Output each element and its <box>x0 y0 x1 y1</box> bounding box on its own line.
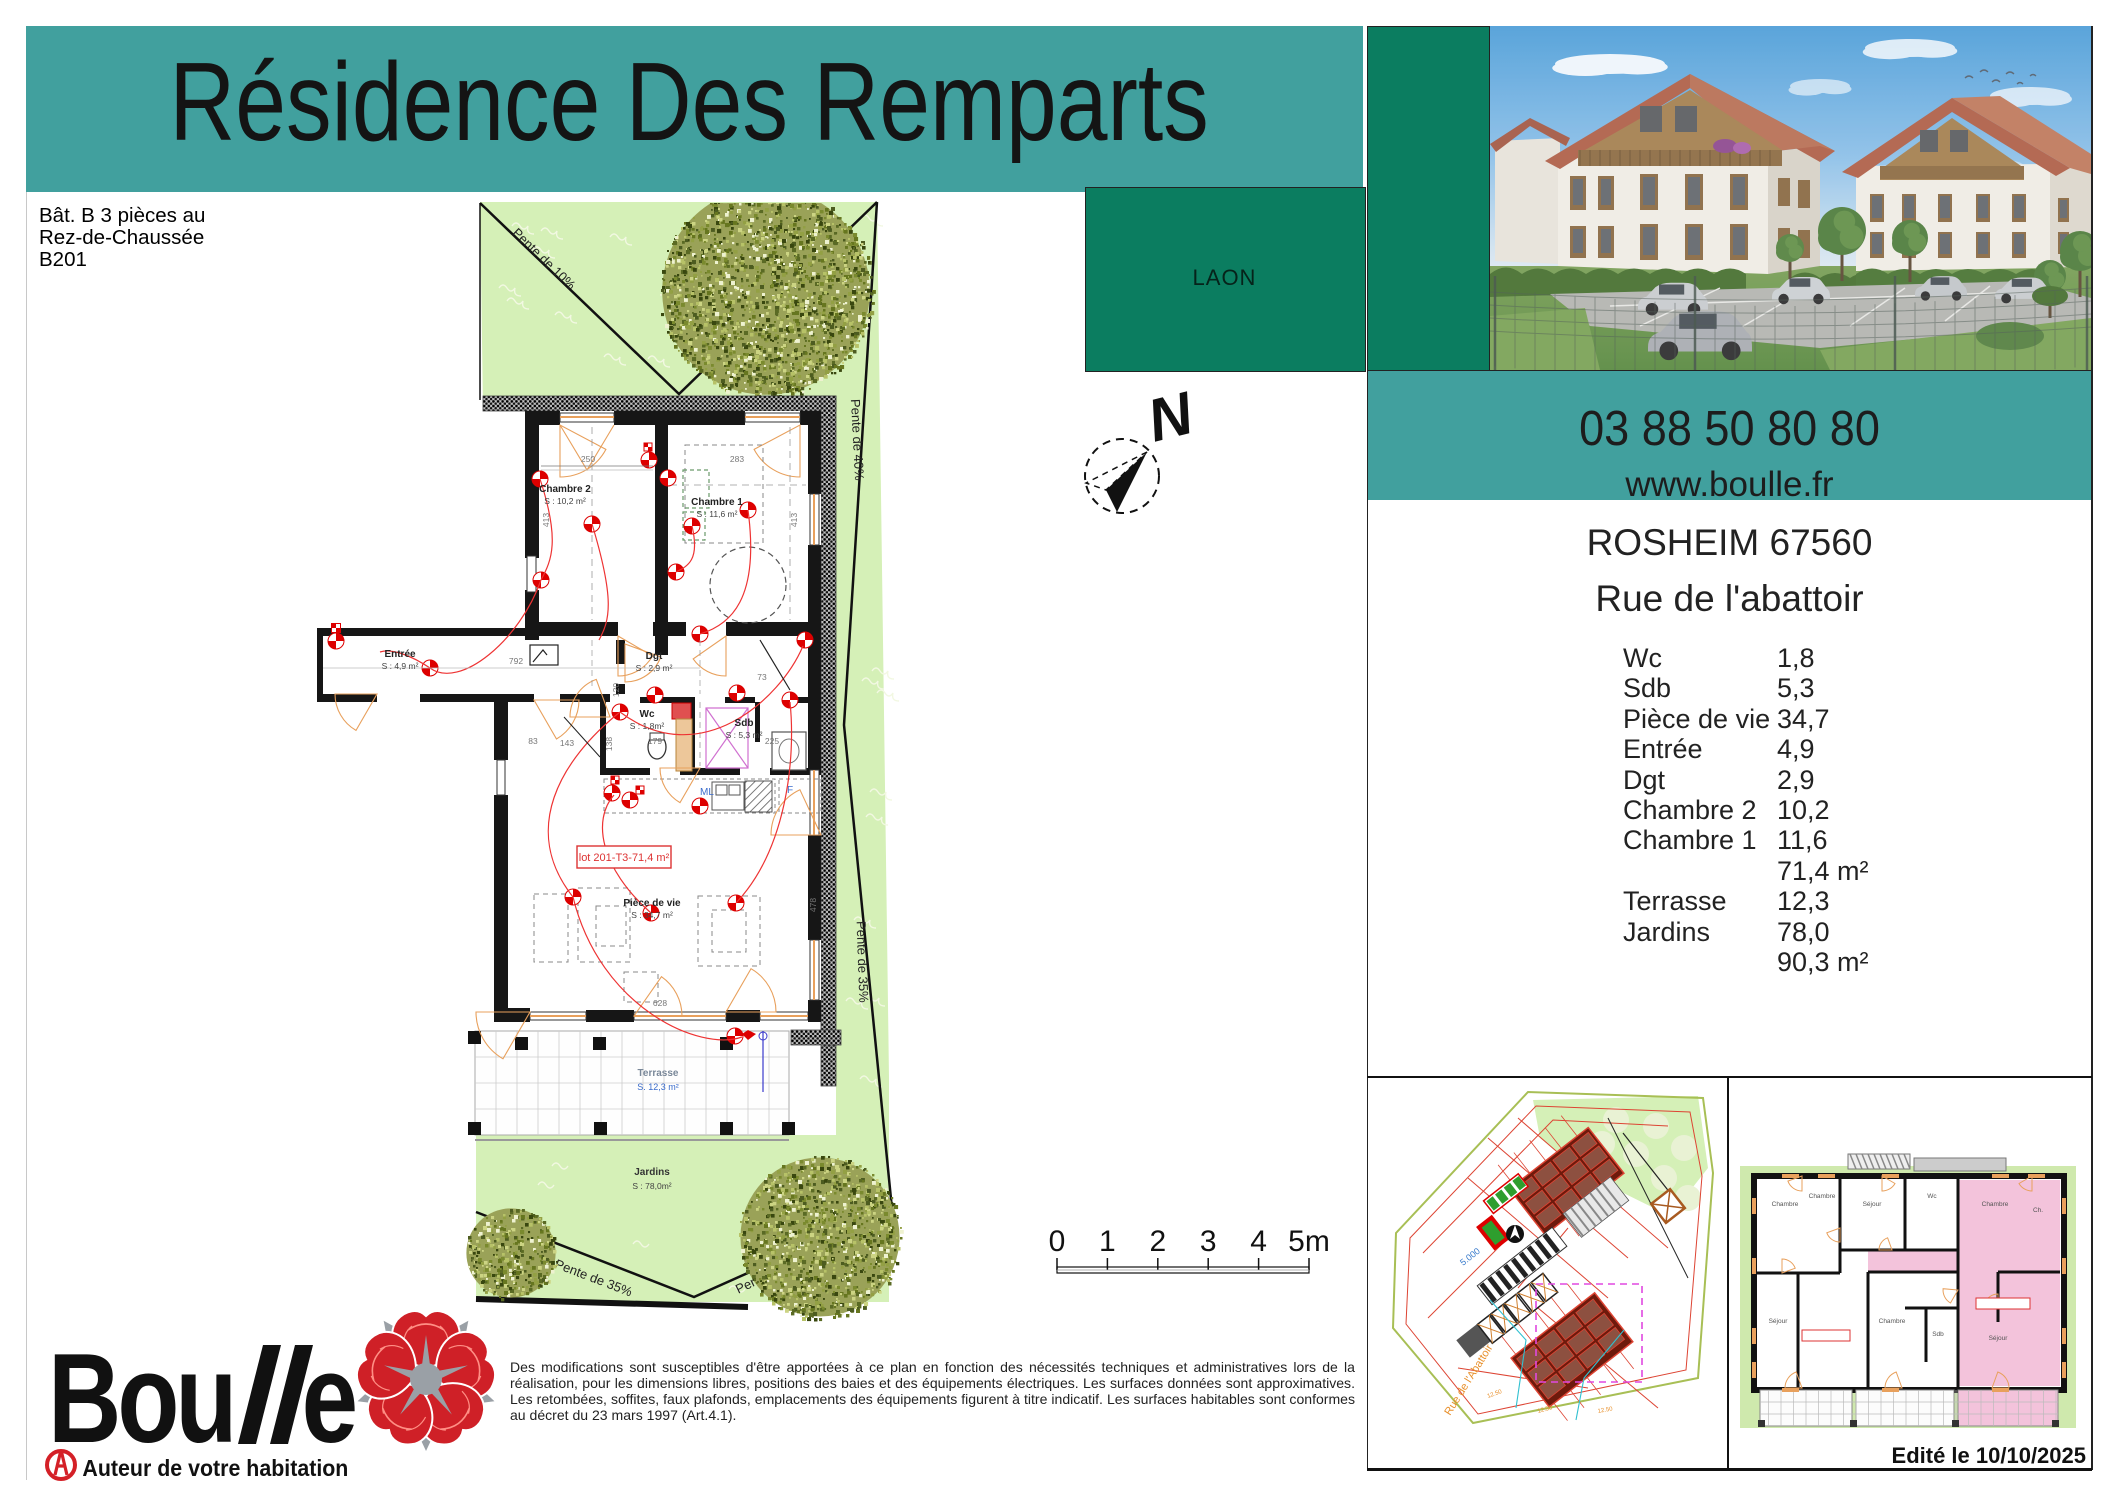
svg-text:Jardins: Jardins <box>634 1167 670 1178</box>
svg-text:S : 11,6 m²: S : 11,6 m² <box>697 509 738 519</box>
svg-text:Bou: Bou <box>48 1328 233 1469</box>
svg-text:S : 5,3 m²: S : 5,3 m² <box>726 730 763 740</box>
svg-text:12.50: 12.50 <box>1537 1405 1554 1415</box>
svg-text:Séjour: Séjour <box>1769 1318 1789 1325</box>
svg-text:Auteur de votre habitation: Auteur de votre habitation <box>82 1455 348 1481</box>
svg-text:225: 225 <box>765 736 779 746</box>
svg-text:12.50: 12.50 <box>1487 1389 1504 1400</box>
svg-text:Séjour: Séjour <box>1863 1201 1883 1208</box>
svg-text:413: 413 <box>789 513 799 527</box>
svg-text:Chambre 1: Chambre 1 <box>691 497 743 508</box>
svg-text:120: 120 <box>611 683 621 697</box>
svg-text:S : 2,9 m²: S : 2,9 m² <box>636 663 673 673</box>
svg-text:12.50: 12.50 <box>1597 1406 1613 1415</box>
svg-text:5.000: 5.000 <box>1458 1246 1482 1268</box>
svg-text:Pente de 35%: Pente de 35% <box>854 921 872 1004</box>
svg-text:138: 138 <box>604 737 614 751</box>
svg-text:Chambre: Chambre <box>1809 1193 1836 1200</box>
svg-text:Chambre: Chambre <box>1982 1201 2009 1208</box>
svg-text:Pièce de vie: Pièce de vie <box>623 898 681 909</box>
svg-text:792: 792 <box>509 656 523 666</box>
svg-text:Sdb: Sdb <box>1932 1331 1944 1338</box>
svg-text:Chambre: Chambre <box>1879 1318 1906 1325</box>
svg-text:S : 78,0m²: S : 78,0m² <box>632 1181 671 1191</box>
svg-text:143: 143 <box>560 738 574 748</box>
svg-text:ML: ML <box>700 787 714 798</box>
svg-text:e: e <box>302 1328 356 1469</box>
svg-text:S. 12,3 m²: S. 12,3 m² <box>637 1082 679 1092</box>
svg-text:Wc: Wc <box>1927 1193 1937 1200</box>
svg-text:83: 83 <box>528 736 538 746</box>
svg-text:Chambre 2: Chambre 2 <box>539 484 591 495</box>
svg-text:Dgt: Dgt <box>646 651 663 662</box>
svg-text:628: 628 <box>653 998 667 1008</box>
svg-text:478: 478 <box>808 898 818 912</box>
svg-text:Terrasse: Terrasse <box>638 1068 679 1079</box>
svg-text:Séjour: Séjour <box>1989 1335 2009 1342</box>
svg-text:73: 73 <box>757 672 767 682</box>
svg-text:S : 34,7 m²: S : 34,7 m² <box>631 910 673 920</box>
svg-text:Chambre: Chambre <box>1772 1201 1799 1208</box>
svg-text:S : 1,8m²: S : 1,8m² <box>630 721 665 731</box>
svg-text:Sdb: Sdb <box>735 718 754 729</box>
svg-text:413: 413 <box>541 513 551 527</box>
svg-text:Ch.: Ch. <box>2033 1207 2043 1214</box>
svg-text:S : 10,2 m²: S : 10,2 m² <box>544 496 586 506</box>
svg-text:lot 201-T3-71,4 m²: lot 201-T3-71,4 m² <box>579 852 670 864</box>
svg-text:283: 283 <box>730 454 744 464</box>
svg-text:Entrée: Entrée <box>384 649 416 660</box>
svg-text:179: 179 <box>648 736 662 746</box>
svg-text:250: 250 <box>581 454 595 464</box>
svg-text:Wc: Wc <box>640 709 655 720</box>
svg-text:S : 4,9 m²: S : 4,9 m² <box>382 661 419 671</box>
